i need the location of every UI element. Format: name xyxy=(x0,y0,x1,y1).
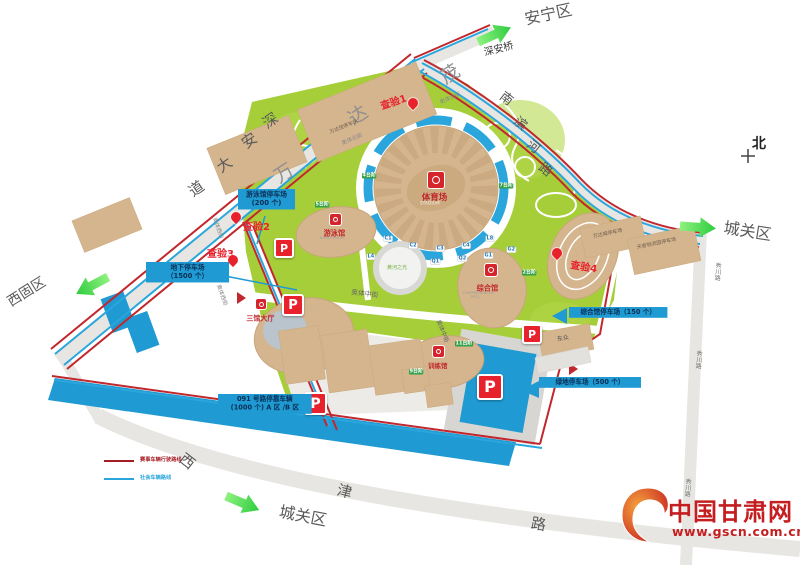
gate-tag: G2 xyxy=(507,247,516,252)
parking-p-icon: P xyxy=(477,374,503,400)
sculpture-name: 黄河之光 xyxy=(387,263,405,271)
step-tag: 4台阶 xyxy=(362,173,376,178)
map-base-graphics xyxy=(0,0,800,565)
gscn-logo-url: www.gscn.com.cn xyxy=(672,524,800,539)
parking-p-icon: P xyxy=(274,238,294,258)
gate-tag: C4 xyxy=(462,243,470,248)
road-xiuchuan: 秀川路 xyxy=(712,262,723,281)
three-hall-lobby-logo-icon xyxy=(256,299,266,309)
step-tag: 11台阶 xyxy=(455,341,473,346)
step-tag: 7台阶 xyxy=(499,183,513,188)
gate-tag: C2 xyxy=(409,243,417,248)
natatorium-caption: NATATORIUM xyxy=(320,236,337,240)
gate-tag: L8 xyxy=(486,236,494,241)
gate-tag: L4 xyxy=(367,254,375,259)
gate-tag: C3 xyxy=(436,246,444,251)
gscn-logo-name: 中国甘肃网 xyxy=(668,492,793,527)
step-tag: 5台阶 xyxy=(315,202,329,207)
gate-tag: Q1 xyxy=(431,259,440,264)
comprehensive-hall-caption: COMPREHENSIVE HALL xyxy=(463,291,488,299)
road091-parking-label: 091 号路停靠车辆 (1000 个) A 区 /B 区 xyxy=(218,394,312,414)
training-hall-name: 训练馆 xyxy=(426,360,449,370)
north-label: 北 xyxy=(752,133,766,153)
natatorium-logo-icon xyxy=(330,214,341,225)
training-hall-logo-icon xyxy=(433,346,444,357)
road091-parking-line2: (1000 个) A 区 /B 区 xyxy=(220,404,310,413)
olympic-center-traffic-map: 安宁区 城关区 西固区 城关区 北 深安桥 深 安 大 道 万 达 茂 南 滨 … xyxy=(0,0,800,565)
arrow-to-chengguan-bottom xyxy=(222,487,263,519)
underground-parking-line2: （1500 个） xyxy=(148,272,227,281)
comprehensive-hall-logo-icon xyxy=(485,264,497,276)
underground-parking-line1: 地下停车场 xyxy=(148,263,227,272)
step-tag: 2台阶 xyxy=(522,270,536,275)
gate-tag: C1 xyxy=(384,236,392,241)
legend-blue-label: 社会车辆路线 xyxy=(140,473,171,481)
road-xiuchuan: 秀川路 xyxy=(693,350,704,369)
legend-red-label: 赛事车辆行驶路线 xyxy=(140,455,182,463)
gate-tag: Q2 xyxy=(458,256,467,261)
green-parking-label: 绿地停车场（500 个） xyxy=(539,377,641,388)
route-arrowhead xyxy=(237,292,246,304)
road091-parking-line1: 091 号路停靠车辆 xyxy=(220,395,310,404)
underground-parking-label: 地下停车场 （1500 个） xyxy=(146,262,229,282)
gate-tag: G1 xyxy=(484,253,493,258)
checkpoint-2-label: 查验2 xyxy=(243,218,270,233)
parking-p-icon: P xyxy=(522,324,542,344)
legend-blue-line xyxy=(104,478,134,480)
parking-p-icon: P xyxy=(282,294,304,316)
three-hall-lobby-name: 三馆大厅 xyxy=(245,312,276,323)
stadium-logo-icon xyxy=(428,172,444,188)
natatorium-parking-label: 游泳馆停车场 (200 个) xyxy=(238,189,295,209)
stadium-caption: STADIUM xyxy=(420,201,437,206)
natatorium-parking-line1: 游泳馆停车场 xyxy=(240,190,293,199)
comprehensive-parking-label: 综合馆停车场（150 个） xyxy=(569,307,667,318)
natatorium-parking-line2: (200 个) xyxy=(240,199,293,208)
legend-red-line xyxy=(104,460,134,462)
step-tag: 9台阶 xyxy=(409,369,423,374)
